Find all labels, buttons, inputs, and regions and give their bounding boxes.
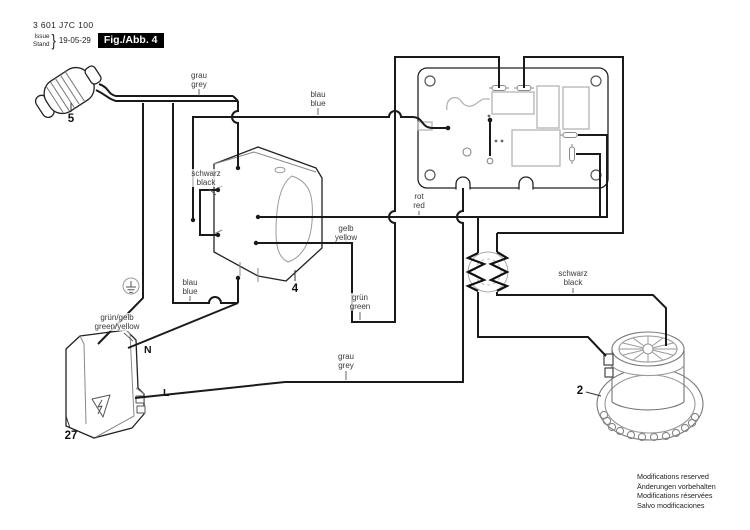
wire-cable-upper <box>99 84 233 96</box>
wire-label-schwarz-black-switch: schwarz black <box>190 169 221 187</box>
wire-label-grau-grey-top: grau grey <box>190 71 208 89</box>
wire-label-gruen-green: grün green <box>349 293 371 311</box>
terminal-label-line: L <box>163 388 169 399</box>
callout-socket-27: 27 <box>65 431 78 443</box>
wiring-diagram-canvas <box>0 0 750 530</box>
wire-label-gruen-gelb: grün/gelb green/yellow <box>94 313 141 331</box>
schematic-page: 3 601 J7C 100 Issue Stand } 19-05-29 Fig… <box>0 0 750 530</box>
board-notch <box>519 177 533 190</box>
stand-label: Stand <box>33 41 49 48</box>
board-notch <box>456 177 470 190</box>
wire-label-rot-red: rot red <box>412 192 426 210</box>
brace-glyph: } <box>51 31 55 50</box>
modifications-notice: Modifications reserved Änderungen vorbeh… <box>637 472 716 510</box>
callout-switch-4: 4 <box>292 284 298 296</box>
callout-plug-5: 5 <box>68 114 74 126</box>
vacuum-motor-illustration <box>597 332 703 441</box>
winding-left <box>468 253 484 291</box>
rocker-switch-illustration <box>214 147 322 282</box>
wire-label-grau-grey-bottom: grau grey <box>337 352 355 370</box>
callout-motor-2: 2 <box>577 386 583 398</box>
issue-date: 19-05-29 <box>59 36 91 45</box>
wire-label-gelb-yellow: gelb yellow <box>334 224 358 242</box>
wire-label-blau-blue-lower: blau blue <box>181 278 198 296</box>
terminal-label-neutral: N <box>144 345 152 356</box>
suppressor-symbol <box>468 252 508 292</box>
part-number: 3 601 J7C 100 <box>33 20 164 30</box>
wire-label-schwarz-black-right: schwarz black <box>557 269 588 287</box>
winding-right <box>491 252 507 291</box>
issue-label: Issue <box>34 33 49 40</box>
wire-feed-to-motor <box>478 292 606 356</box>
wire-label-blau-blue-top: blau blue <box>309 90 326 108</box>
figure-badge: Fig./Abb. 4 <box>98 33 164 48</box>
ground-symbol <box>123 278 139 294</box>
title-block: 3 601 J7C 100 Issue Stand } 19-05-29 Fig… <box>33 20 164 48</box>
wire-green-yellow <box>98 103 143 344</box>
